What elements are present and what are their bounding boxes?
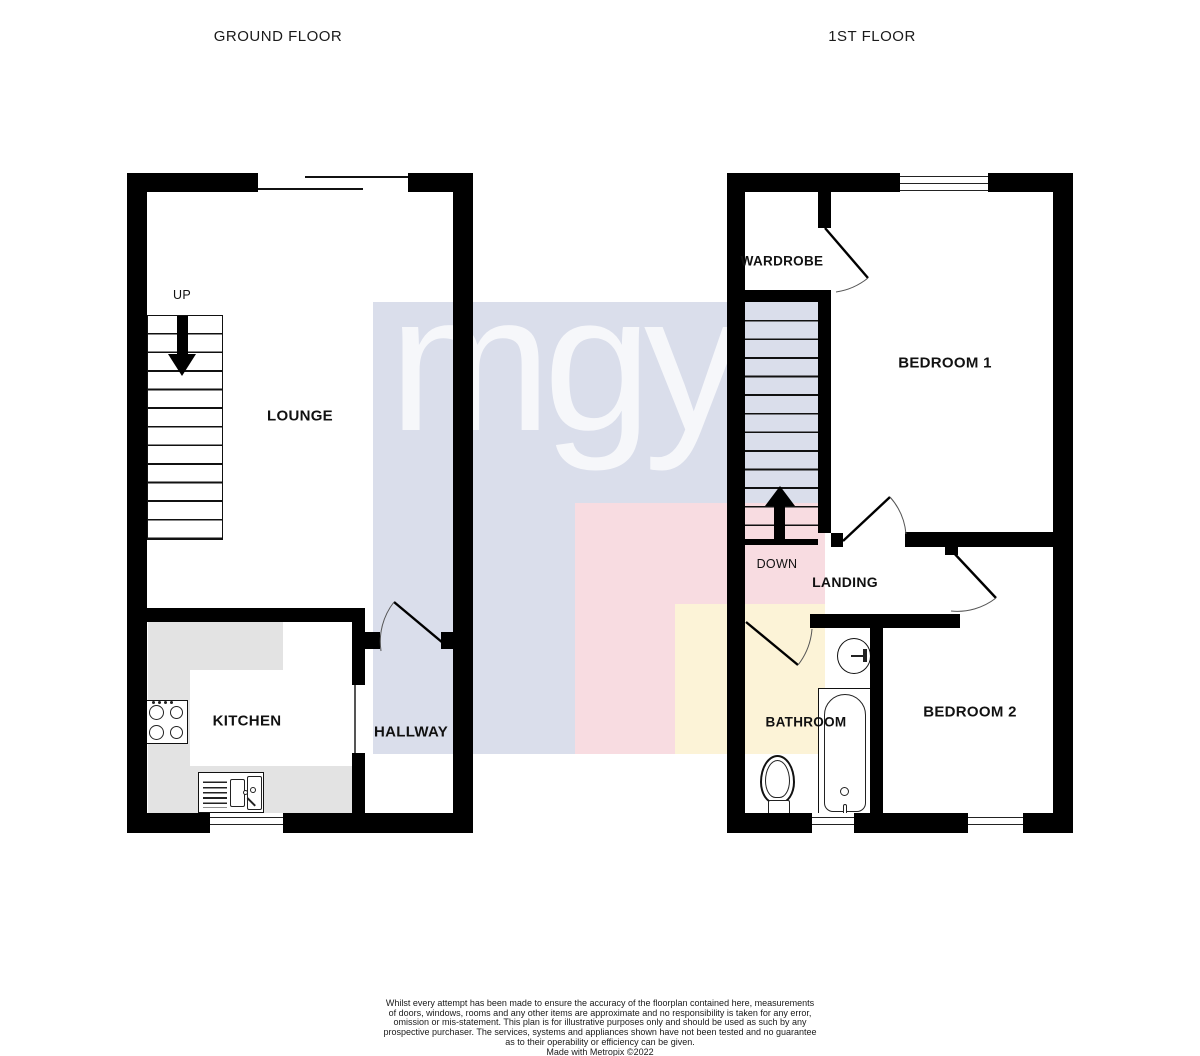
wardrobe-door-arc: [836, 278, 868, 292]
room-label-bedroom2: BEDROOM 2: [923, 704, 1017, 721]
ff-stairs-direction-label: DOWN: [757, 557, 798, 571]
disclaimer-text: Whilst every attempt has been made to en…: [180, 999, 1020, 1056]
made-with-credit: Made with Metropix ©2022: [180, 1048, 1020, 1056]
floorplan-canvas: mgy GROUND FLOOR 1ST FLOOR UP LOU: [0, 0, 1200, 1056]
ground-floor-title: GROUND FLOOR: [214, 28, 343, 45]
bathroom-door-arc: [798, 629, 812, 665]
first-floor-title: 1ST FLOOR: [828, 28, 916, 45]
wardrobe-door-leaf: [825, 228, 868, 278]
room-label-kitchen: KITCHEN: [213, 713, 282, 730]
room-label-lounge: LOUNGE: [267, 408, 333, 425]
door-swings-layer: [0, 0, 1200, 1056]
bedroom1-door-leaf: [843, 497, 890, 541]
room-label-wardrobe: WARDROBE: [741, 254, 824, 269]
gf-hall-door-leaf: [394, 602, 443, 643]
bedroom2-door-leaf: [952, 551, 996, 598]
bathroom-door-leaf: [746, 622, 798, 665]
gf-stairs-direction-label: UP: [173, 288, 191, 302]
room-label-hallway: HALLWAY: [374, 724, 448, 741]
bedroom1-door-arc: [890, 497, 906, 534]
bedroom2-door-arc: [951, 598, 996, 611]
room-label-bathroom: BATHROOM: [766, 715, 847, 730]
room-label-bedroom1: BEDROOM 1: [898, 355, 992, 372]
gf-hall-door-arc: [380, 602, 394, 651]
room-label-landing: LANDING: [812, 574, 878, 590]
